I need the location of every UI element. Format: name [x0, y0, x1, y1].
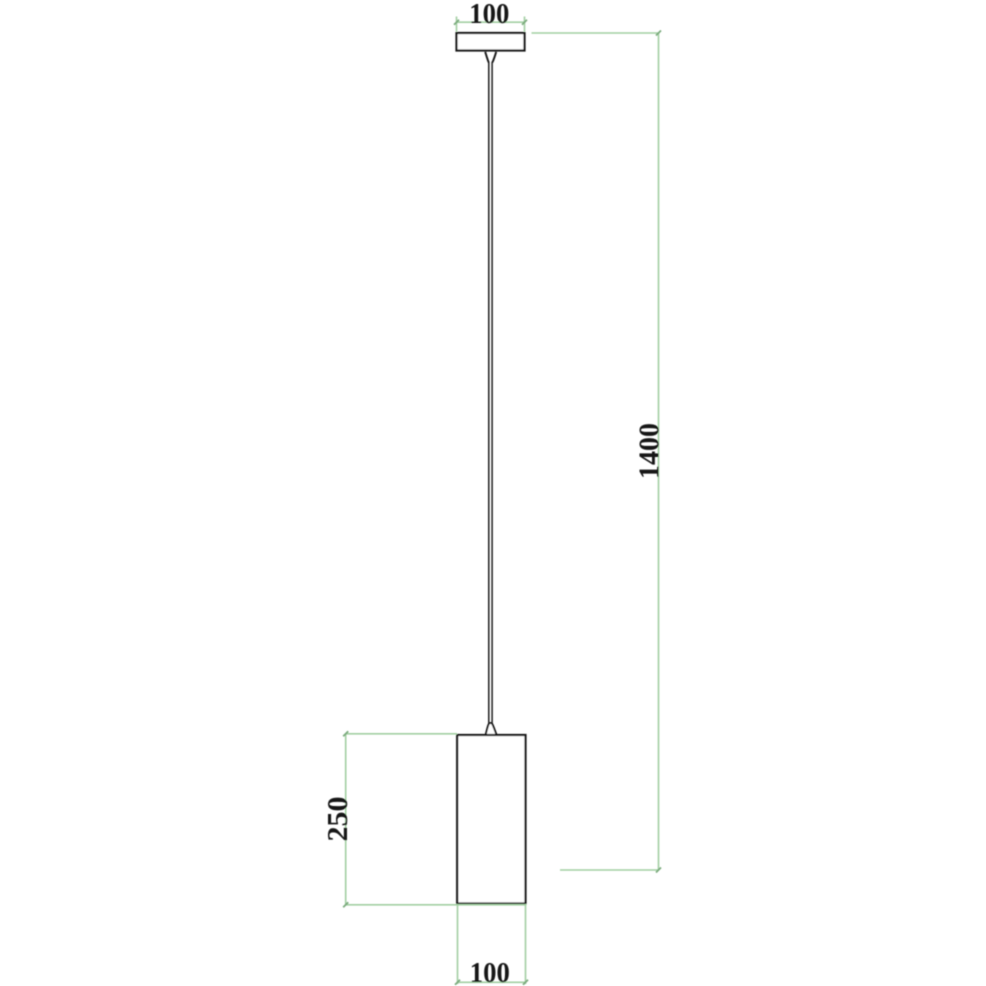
svg-text:100: 100: [470, 957, 510, 986]
svg-text:1400: 1400: [634, 423, 666, 479]
svg-text:100: 100: [469, 0, 509, 30]
svg-text:250: 250: [322, 797, 354, 842]
